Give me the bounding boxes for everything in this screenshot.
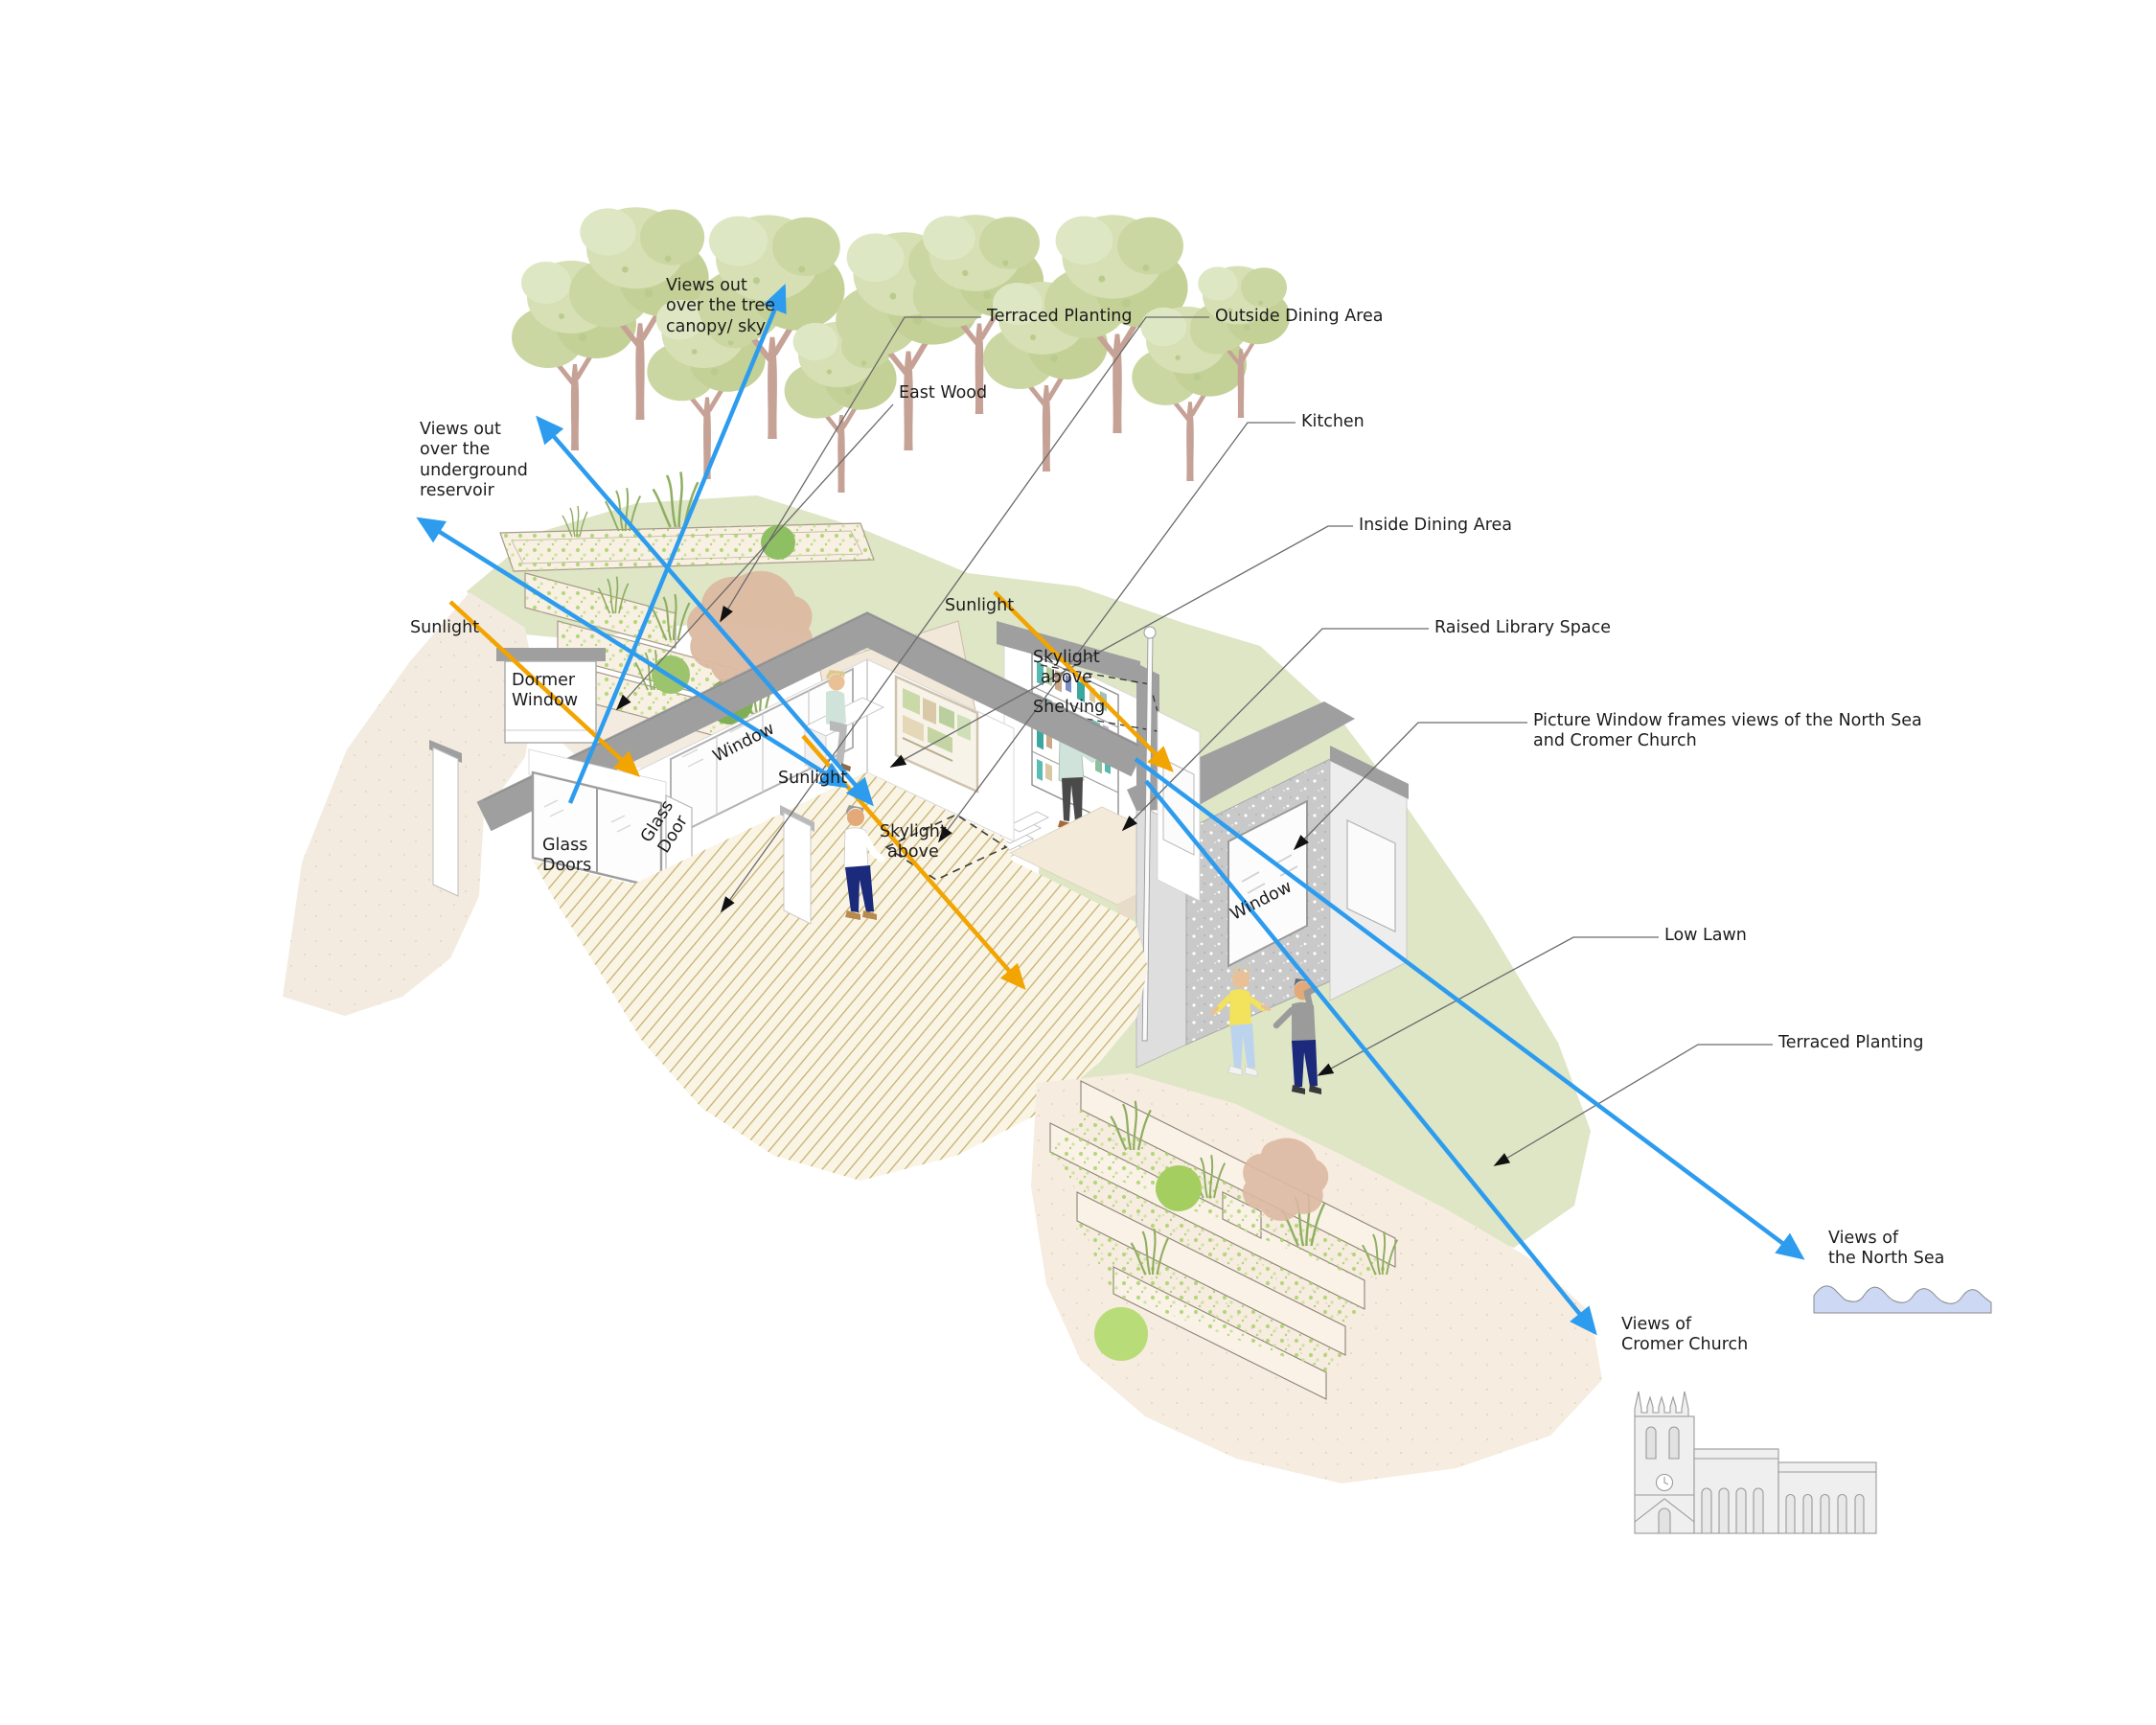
- label-terraced-planting-top: Terraced Planting: [987, 307, 1133, 327]
- east-wood-trees: [512, 207, 1290, 493]
- fin-wall-left: [429, 740, 462, 896]
- bush: [1156, 1165, 1202, 1211]
- label-sunlight-interior: Sunlight: [778, 769, 847, 789]
- label-low-lawn: Low Lawn: [1664, 926, 1747, 946]
- label-shelving: Shelving: [1033, 698, 1105, 718]
- label-sunlight-left: Sunlight: [410, 618, 479, 638]
- label-views-reservoir: Views out over the underground reservoir: [420, 420, 528, 501]
- label-terraced-planting-right: Terraced Planting: [1778, 1033, 1924, 1053]
- label-east-wood: East Wood: [899, 383, 987, 403]
- label-views-tree-canopy: Views out over the tree canopy/ sky: [666, 276, 775, 337]
- cromer-church: [1635, 1391, 1876, 1533]
- bush: [1094, 1307, 1148, 1361]
- label-kitchen: Kitchen: [1301, 412, 1365, 432]
- diagram-canvas: [0, 0, 2156, 1725]
- label-outside-dining: Outside Dining Area: [1215, 307, 1383, 327]
- label-skylight-floor: Skylight above: [880, 822, 947, 863]
- label-dormer-window: Dormer Window: [512, 671, 578, 712]
- label-views-cromer: Views of Cromer Church: [1621, 1315, 1748, 1356]
- bush: [761, 525, 795, 560]
- label-views-north-sea: Views of the North Sea: [1828, 1229, 1944, 1270]
- label-picture-window: Picture Window frames views of the North…: [1533, 711, 1922, 752]
- label-inside-dining: Inside Dining Area: [1359, 516, 1512, 536]
- north-sea-waves: [1814, 1286, 1991, 1313]
- label-sunlight-center: Sunlight: [945, 596, 1014, 616]
- label-raised-library: Raised Library Space: [1434, 618, 1611, 638]
- architectural-diagram: Views out over the tree canopy/ sky View…: [0, 0, 2156, 1725]
- label-glass-doors: Glass Doors: [542, 836, 591, 877]
- label-skylight-shelf: Skylight above: [1033, 648, 1100, 689]
